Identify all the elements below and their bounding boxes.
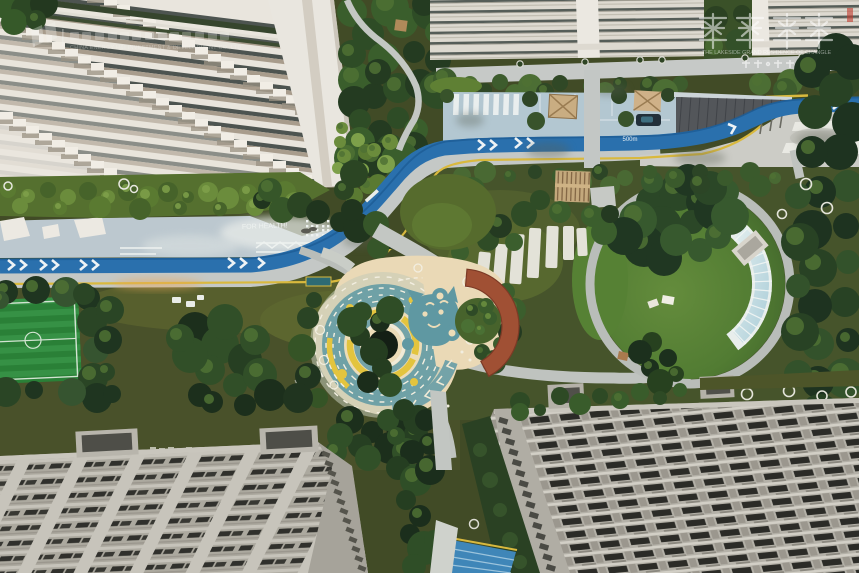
svg-text:CHINA ENERGY H&I INVESTMENT &: CHINA ENERGY H&I INVESTMENT & DEVELOPMEN… <box>70 45 242 51</box>
svg-text:500m: 500m <box>622 137 637 143</box>
svg-text:THE LAKESIDE GRAND RESIDENCE O: THE LAKESIDE GRAND RESIDENCE OF CHANGLE <box>702 50 832 56</box>
